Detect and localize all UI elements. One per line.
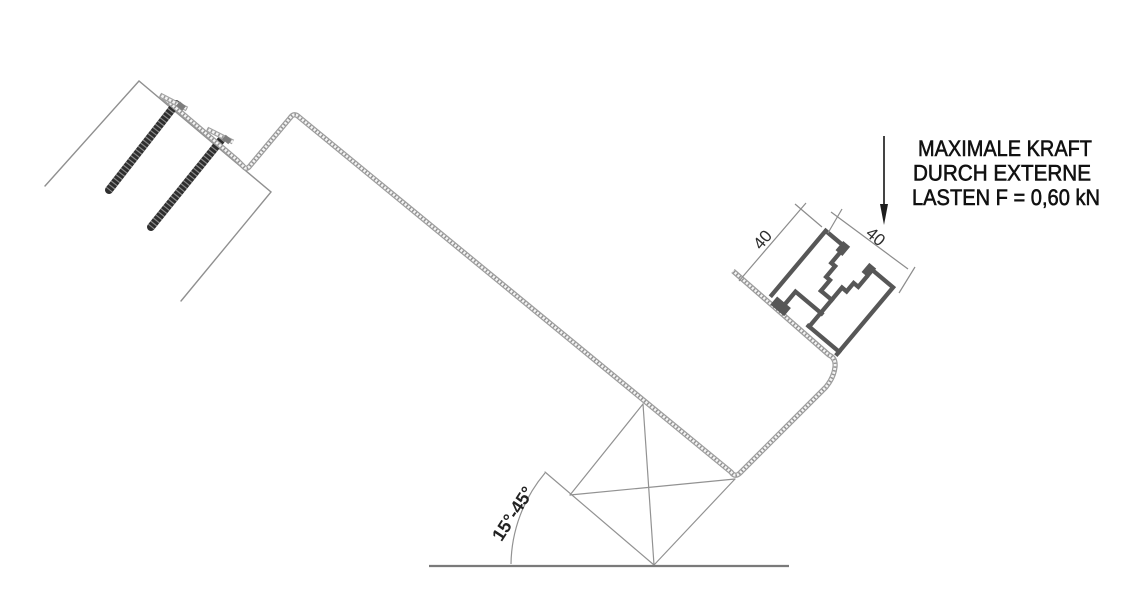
svg-text:40: 40 xyxy=(862,223,889,250)
svg-text:MAXIMALE KRAFT: MAXIMALE KRAFT xyxy=(918,136,1092,161)
svg-text:DURCH EXTERNE: DURCH EXTERNE xyxy=(913,161,1091,186)
svg-text:15°-45°: 15°-45° xyxy=(488,483,538,545)
svg-text:LASTEN F = 0,60 kN: LASTEN F = 0,60 kN xyxy=(912,185,1100,210)
svg-text:40: 40 xyxy=(749,227,776,254)
